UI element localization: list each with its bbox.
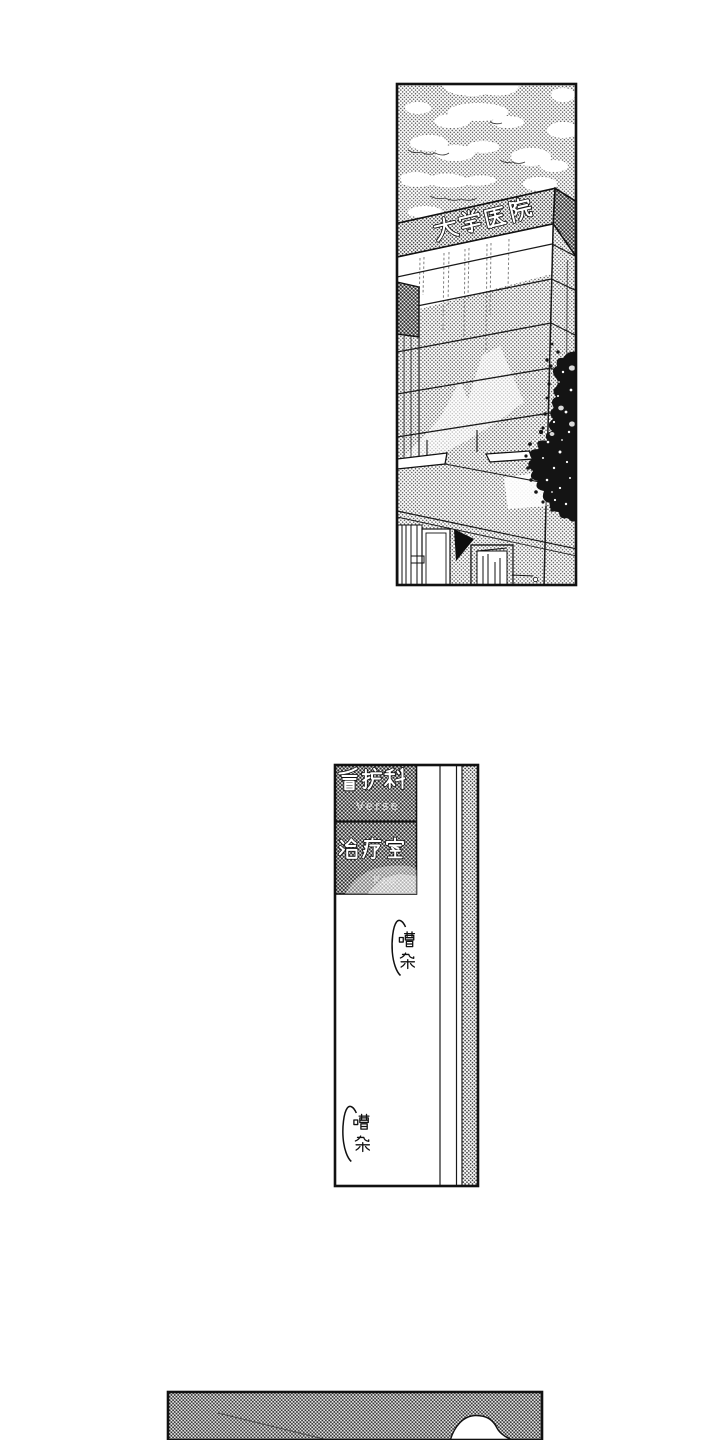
svg-text:Kce: Kce: [373, 873, 397, 887]
svg-text:Verse: Verse: [356, 799, 400, 813]
